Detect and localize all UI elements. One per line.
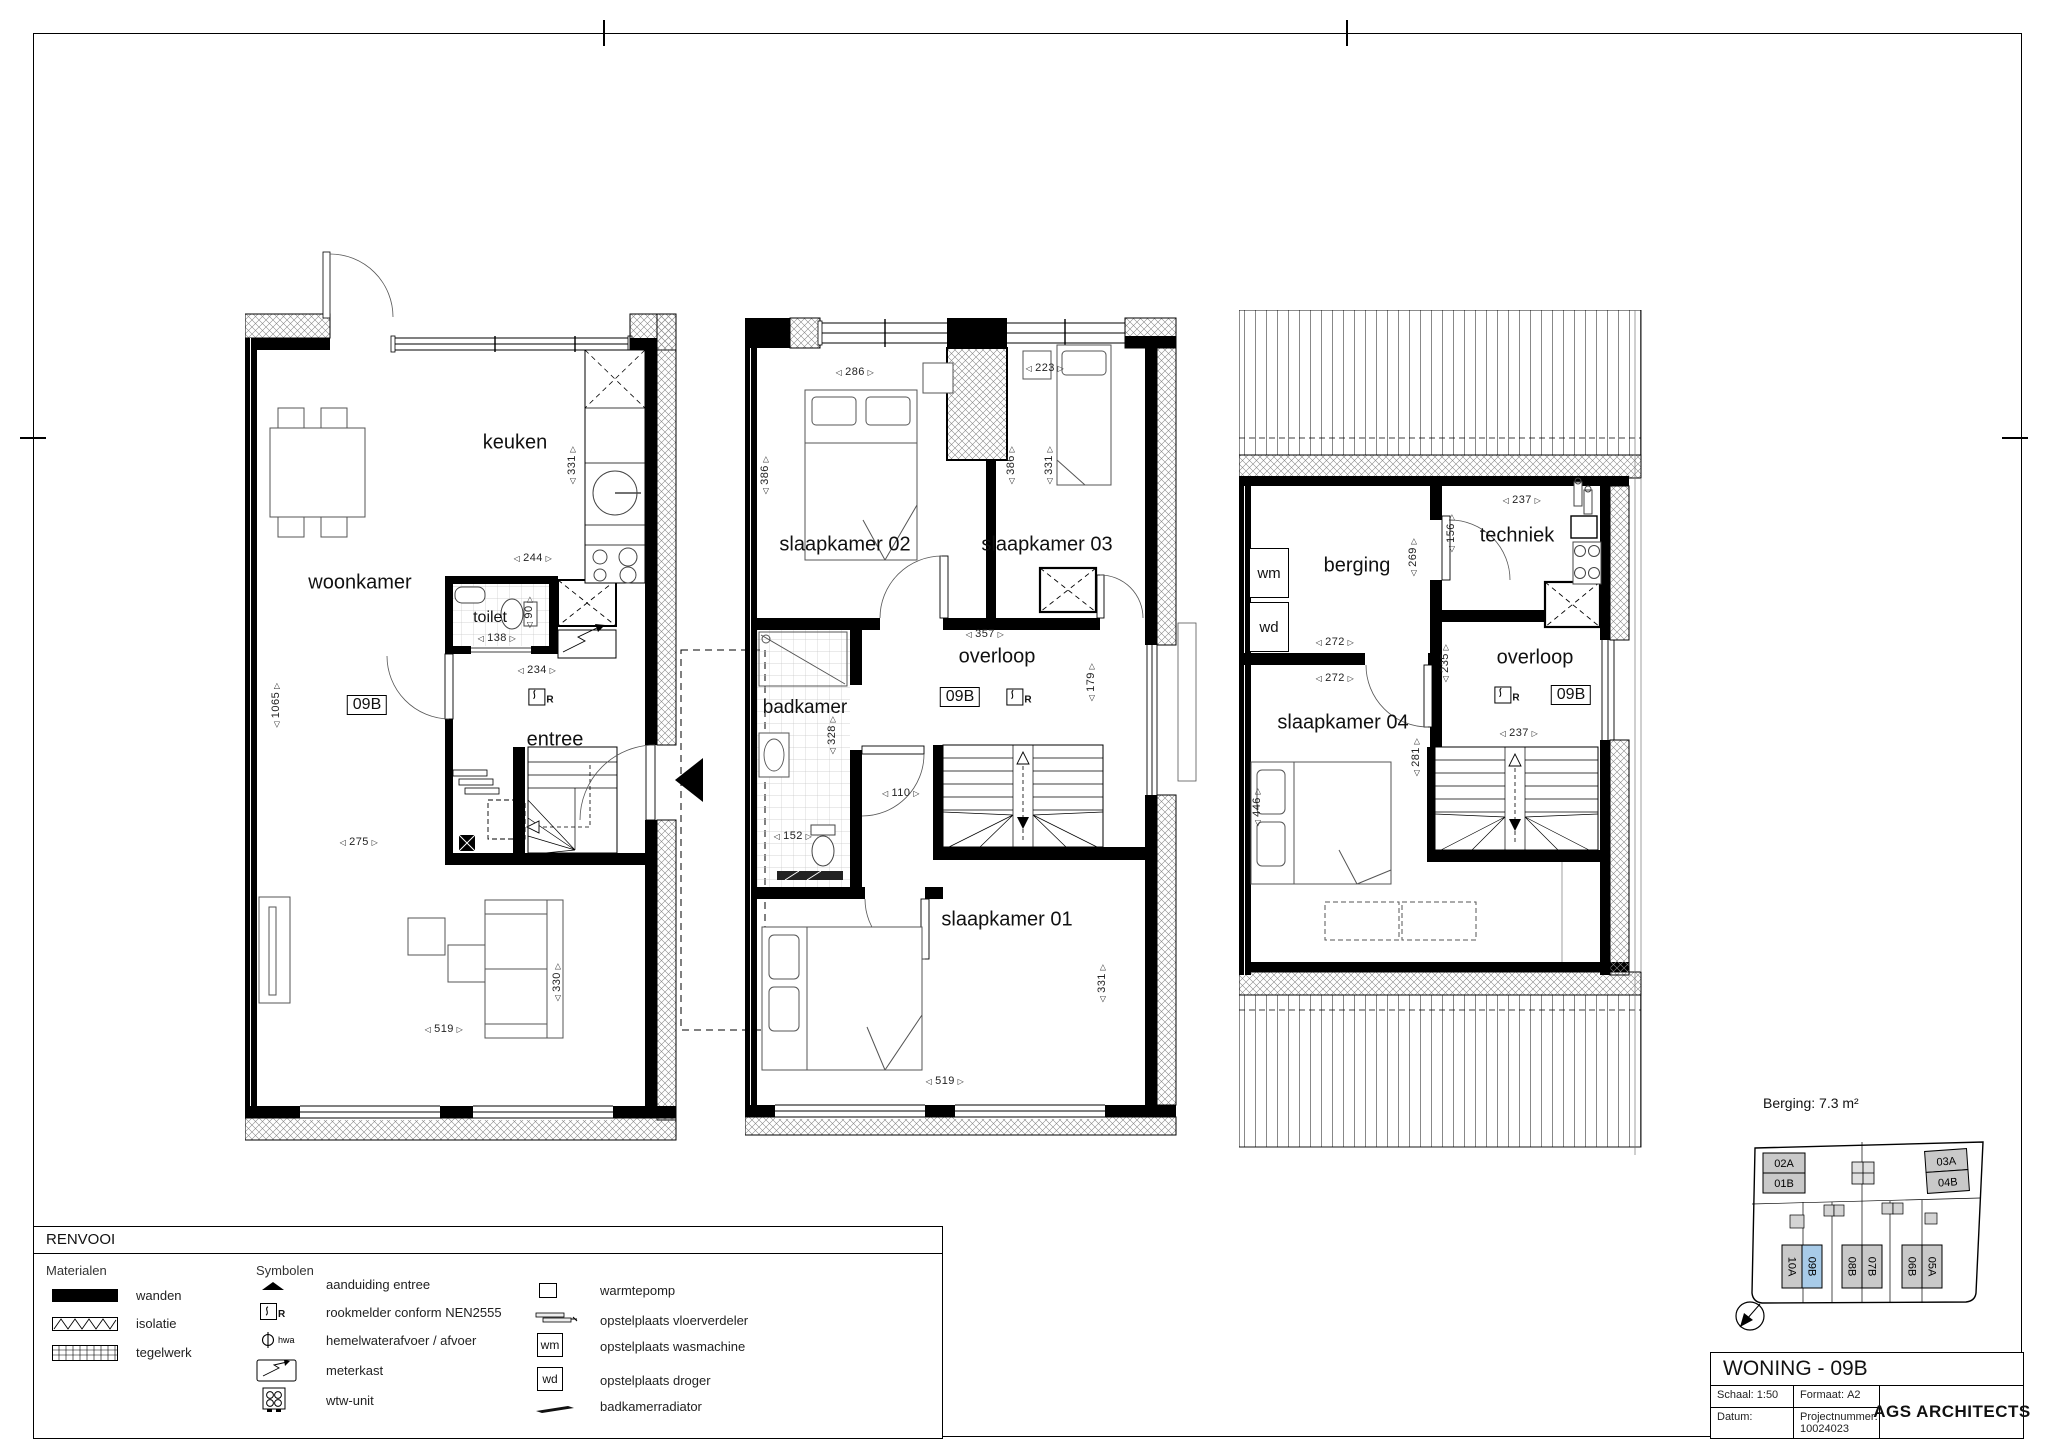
meterkast-icon: [256, 1357, 298, 1388]
site-block-top-right: 03A 04B: [1925, 1149, 1970, 1194]
bed-slk04: [1251, 762, 1391, 884]
wm-icon: wm: [537, 1333, 563, 1357]
meterkast: [558, 624, 616, 658]
balcony-rail: [1178, 623, 1196, 781]
entry-arrow-icon: [675, 758, 703, 802]
dim-overloop-depth: 179: [1085, 663, 1097, 702]
site-unit-06B: 06B: [1906, 1257, 1918, 1277]
rookmelder-icon: R: [260, 1303, 285, 1320]
droger-spot: wd: [1249, 602, 1289, 652]
drawing-sheet: keuken woonkamer toilet entree 09B R 331…: [0, 0, 2048, 1449]
legend-symbol-label: rookmelder conform NEN2555: [326, 1305, 502, 1320]
dim-overloop-width: 237: [1500, 727, 1539, 739]
site-unit-05A: 05A: [1926, 1257, 1938, 1277]
hwa-icon: hwa: [260, 1331, 308, 1354]
floorplan-ground: keuken woonkamer toilet entree 09B R 331…: [245, 250, 785, 1150]
site-unit-01B: 01B: [1774, 1178, 1794, 1190]
techniek-equipment: [1571, 478, 1601, 584]
staircase: [527, 747, 617, 853]
fold-mark: [1346, 20, 1348, 46]
badkamerradiator-icon: [534, 1401, 578, 1419]
room-label-berging: berging: [1324, 555, 1391, 578]
wanden-swatch: [52, 1289, 118, 1302]
staircase: [1435, 747, 1598, 850]
formaat-cell: Formaat: A2: [1793, 1386, 1879, 1408]
room-label-entree: entree: [527, 729, 584, 752]
floorplan-first: slaapkamer 02 slaapkamer 03 overloop bad…: [745, 315, 1205, 1145]
site-unit-04B: 04B: [1938, 1176, 1958, 1189]
shaft-duct: [558, 580, 616, 626]
dim-slk03-depth: 386: [1005, 446, 1017, 485]
dim-keuken-width: 244: [514, 552, 553, 564]
svg-text:hwa: hwa: [278, 1335, 295, 1345]
roof-top: [1239, 310, 1641, 486]
dim-woonkamer-width: 275: [340, 836, 379, 848]
legend-material-label: isolatie: [136, 1316, 176, 1331]
floorplan-first-drawing: [745, 315, 1205, 1145]
wd-icon: wd: [537, 1367, 563, 1391]
drawing-title: WONING - 09B: [1711, 1353, 2023, 1386]
legend-materials-header: Materialen: [46, 1263, 107, 1278]
fold-mark: [603, 20, 605, 46]
legend-material-label: tegelwerk: [136, 1345, 192, 1360]
room-label-overloop: overloop: [1497, 647, 1574, 670]
dim-techniek-width: 237: [1503, 494, 1542, 506]
dim-slk02-depth: 386: [759, 456, 771, 495]
site-unit-03A: 03A: [1936, 1155, 1957, 1168]
dim-toilet-depth: 90: [523, 596, 535, 628]
dim-berging-width: 272: [1316, 636, 1355, 648]
architect-logo: AGS ARCHITECTS: [1879, 1386, 2024, 1438]
datum-cell: Datum:: [1711, 1408, 1793, 1438]
dim-bottom-depth: 330: [551, 963, 563, 1002]
room-label-slaapkamer04: slaapkamer 04: [1277, 712, 1408, 735]
bed-slk01: [762, 927, 922, 1070]
bathroom: [757, 630, 850, 887]
smoke-detector-icon: R: [1494, 687, 1519, 704]
legend-symbol-label: warmtepomp: [600, 1283, 675, 1298]
legend: RENVOOI Materialen Symbolen wanden isola…: [33, 1226, 943, 1439]
warmtepomp: [1571, 516, 1597, 538]
dim-bottom-width: 519: [425, 1023, 464, 1035]
warmtepomp-icon: [539, 1283, 557, 1298]
dim-keuken-depth: 331: [566, 446, 578, 485]
site-unit-10A: 10A: [1786, 1257, 1798, 1277]
tv-cabinet: [259, 897, 290, 1003]
fold-mark: [20, 437, 46, 439]
dim-badkamer-depth: 328: [826, 716, 838, 755]
smoke-detector-icon: R: [1006, 689, 1031, 706]
shaft-duct: [1040, 568, 1096, 612]
dim-overloop-depth: 235: [1439, 644, 1451, 683]
floorplan-second: wm wd berging techniek overloop slaapkam…: [1239, 310, 1699, 1155]
legend-symbol-label: badkamerradiator: [600, 1399, 702, 1414]
title-block: WONING - 09B Schaal: 1:50 Formaat: A2 Da…: [1710, 1352, 2024, 1439]
legend-symbol-label: meterkast: [326, 1363, 383, 1378]
isolatie-swatch: [52, 1317, 118, 1336]
dim-overloop-width: 357: [966, 628, 1005, 640]
tegelwerk-swatch: [52, 1345, 118, 1366]
room-label-slaapkamer02: slaapkamer 02: [779, 534, 910, 557]
legend-symbol-label: opstelplaats wasmachine: [600, 1339, 745, 1354]
wtw-unit-icon: [262, 1387, 286, 1418]
north-arrow-icon: [1730, 1296, 1770, 1336]
legend-symbol-label: aanduiding entree: [326, 1277, 430, 1292]
room-label-techniek: techniek: [1480, 525, 1555, 548]
legend-symbol-label: wtw-unit: [326, 1393, 374, 1408]
legend-title: RENVOOI: [46, 1231, 115, 1248]
site-unit-08B: 08B: [1846, 1257, 1858, 1277]
shaft-duct: [1545, 582, 1600, 627]
dim-slk04-depth: 446: [1251, 788, 1263, 827]
sofa: [408, 900, 563, 1038]
wasmachine-spot: wm: [1249, 548, 1289, 598]
fold-mark: [2002, 437, 2028, 439]
room-label-overloop: overloop: [959, 646, 1036, 669]
front-door: [323, 252, 393, 318]
legend-symbol-label: opstelplaats vloerverdeler: [600, 1313, 748, 1328]
vloerverdeler-icon: [534, 1311, 578, 1332]
dim-slk03-depth2: 331: [1043, 446, 1055, 485]
dim-slk01-depth: 331: [1096, 964, 1108, 1003]
dim-woonkamer-depth: 1065: [270, 682, 282, 727]
dim-slk01-width: 519: [926, 1075, 965, 1087]
roof-bottom: [1239, 962, 1641, 1147]
unit-number-box: 09B: [940, 687, 980, 707]
legend-symbol-label: opstelplaats droger: [600, 1373, 711, 1388]
legend-material-label: wanden: [136, 1288, 182, 1303]
dim-hal-width: 110: [882, 787, 920, 799]
legend-symbol-label: hemelwaterafvoer / afvoer: [326, 1333, 476, 1348]
dim-berging-depth: 269: [1407, 538, 1419, 577]
unit-number-box: 09B: [347, 695, 387, 715]
floorplan-ground-drawing: [245, 250, 785, 1150]
room-label-toilet: toilet: [473, 609, 507, 627]
dim-slk03-width: 223: [1026, 362, 1065, 374]
dim-hal-width: 234: [518, 664, 557, 676]
bed-slk02: [805, 363, 953, 560]
dining-set: [270, 408, 365, 537]
site-unit-09B: 09B: [1806, 1257, 1818, 1277]
dim-slk02-width: 286: [836, 366, 875, 378]
dim-badkamer-width: 152: [774, 830, 813, 842]
room-label-keuken: keuken: [483, 432, 548, 455]
smoke-detector-icon: R: [528, 689, 553, 706]
dim-slk04-depth2: 281: [1410, 738, 1422, 777]
site-unit-02A: 02A: [1774, 1158, 1794, 1170]
room-label-slaapkamer01: slaapkamer 01: [941, 909, 1072, 932]
entree-arrow-icon: [260, 1279, 286, 1297]
site-block-top-left: 02A 01B: [1763, 1153, 1805, 1193]
site-plan: 02A 01B 03A 04B 10A 09B 08B 07B 06B 05A: [1740, 1138, 2000, 1338]
site-unit-07B: 07B: [1866, 1257, 1878, 1277]
staircase: [943, 745, 1103, 847]
projectnummer-cell: Projectnummer:10024023: [1793, 1408, 1879, 1438]
schaal-cell: Schaal: 1:50: [1711, 1386, 1793, 1408]
room-label-slaapkamer03: slaapkamer 03: [981, 534, 1112, 557]
dim-toilet-width: 138: [478, 632, 517, 644]
room-label-woonkamer: woonkamer: [308, 572, 411, 595]
dim-slk04-width: 272: [1316, 672, 1355, 684]
kitchen-counter: [585, 350, 645, 583]
site-blocks-bottom: 10A 09B 08B 07B 06B 05A: [1782, 1245, 1942, 1288]
legend-symbols-header: Symbolen: [256, 1263, 314, 1278]
unit-number-box: 09B: [1551, 685, 1591, 705]
berging-area-note: Berging: 7.3 m²: [1763, 1095, 1859, 1111]
dim-techniek-depth: 156: [1445, 514, 1457, 553]
